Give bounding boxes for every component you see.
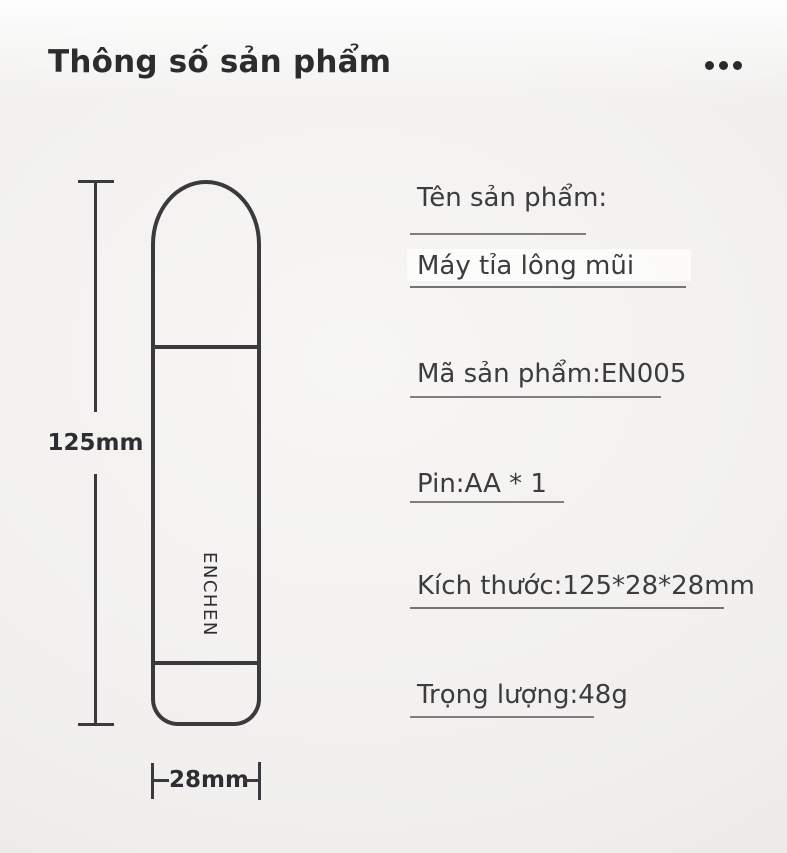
ellipsis-icon[interactable]: [705, 61, 742, 70]
width-label: 28mm: [169, 767, 243, 793]
spec-dimensions: Kích thước:125*28*28mm: [417, 571, 755, 601]
dimension-line: [243, 779, 258, 782]
spec-product-name-value: Máy tỉa lông mũi: [417, 251, 634, 281]
dimension-cap: [78, 723, 114, 726]
spec-underline: [410, 607, 724, 609]
spec-underline: [410, 716, 594, 718]
device-base-seam: [153, 661, 259, 665]
spec-underline: [410, 286, 686, 288]
product-spec-card: Thông số sản phẩm ENCHEN 125mm 28mm Tên: [0, 0, 787, 853]
dimension-line: [154, 779, 169, 782]
spec-weight: Trọng lượng:48g: [417, 680, 628, 710]
spec-underline: [410, 396, 661, 398]
height-label: 125mm: [38, 430, 153, 456]
ellipsis-dot: [705, 61, 714, 70]
device-cap-seam: [153, 345, 259, 349]
page-title: Thông số sản phẩm: [48, 44, 391, 80]
spec-product-name-label: Tên sản phẩm:: [417, 183, 607, 213]
brand-logo-text: ENCHEN: [192, 546, 220, 642]
spec-underline: [410, 501, 564, 503]
dimension-line: [94, 180, 97, 412]
spec-underline: [410, 233, 586, 235]
ellipsis-dot: [733, 61, 742, 70]
dimension-tick: [258, 762, 261, 800]
dimension-line: [94, 474, 97, 726]
ellipsis-dot: [719, 61, 728, 70]
spec-product-code: Mã sản phẩm:EN005: [417, 359, 686, 389]
device-outline: [151, 180, 261, 726]
spec-battery: Pin:AA * 1: [417, 469, 547, 499]
